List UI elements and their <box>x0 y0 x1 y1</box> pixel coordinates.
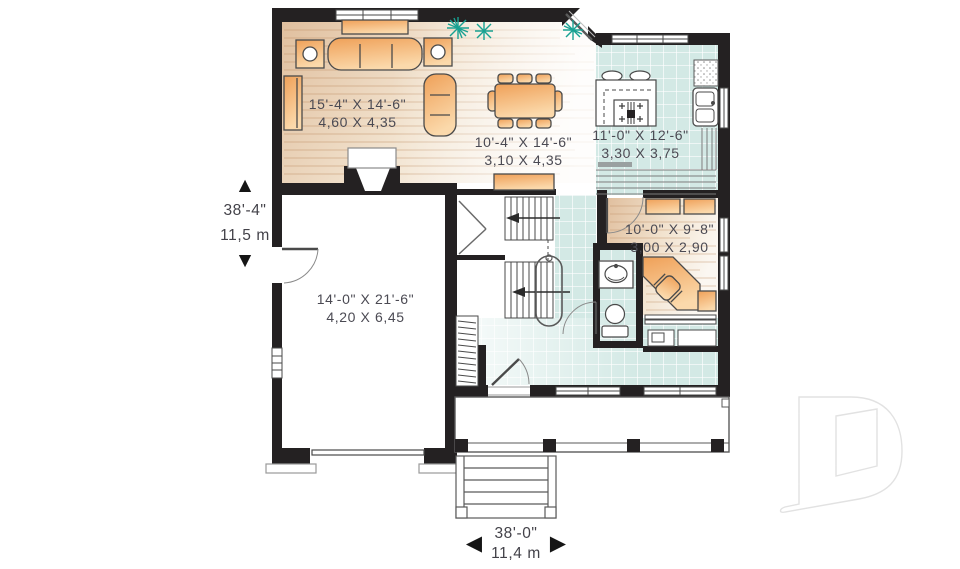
kitchen-sink <box>693 88 718 126</box>
garage-side-window <box>272 348 282 378</box>
dining-chair <box>517 119 532 128</box>
dining-chair <box>536 119 551 128</box>
foyer-window-2 <box>644 387 716 395</box>
overall-depth-dimension: ▲ 38'-4" 11,5 m ▼ <box>203 176 287 271</box>
closet-shelf <box>678 330 716 346</box>
room-dimension-imperial: 10'-0" X 9'-8" <box>582 220 757 238</box>
buffet <box>494 174 554 190</box>
shelf-unit <box>684 199 715 214</box>
width-metric: 11,4 m <box>491 544 541 564</box>
porch <box>455 397 729 452</box>
width-imperial: 38'-0" <box>494 524 537 544</box>
right-arrow-icon: ▶ <box>550 534 566 554</box>
sliding-door-track <box>645 315 716 319</box>
entry-closet <box>456 316 478 386</box>
overall-width-dimension: ◀ 38'-0" 11,4 m ▶ <box>432 524 600 564</box>
side-cabinet <box>698 291 716 311</box>
depth-metric: 11,5 m <box>220 226 270 246</box>
left-arrow-icon: ◀ <box>466 534 482 554</box>
console-table <box>342 20 408 34</box>
room-label-garage: 14'-0" X 21'-6" 4,20 X 6,45 <box>278 290 453 326</box>
kitchen-top-window <box>612 35 688 43</box>
room-dimension-imperial: 15'-4" X 14'-6" <box>270 95 445 113</box>
dining-table <box>495 84 555 118</box>
room-dimension-metric: 4,20 X 6,45 <box>278 308 453 326</box>
brand-watermark-logo <box>781 397 903 512</box>
dining-chair <box>517 74 532 83</box>
garage-door <box>312 450 424 455</box>
foundation-footings <box>266 464 469 473</box>
faucet-icon <box>711 101 715 105</box>
down-arrow-icon: ▼ <box>235 251 256 271</box>
dining-chair <box>498 74 513 83</box>
cooktop <box>614 100 648 126</box>
sliding-door-track <box>645 320 716 324</box>
fireplace <box>344 148 400 195</box>
floor-plan-canvas <box>0 0 960 569</box>
room-dimension-metric: 4,60 X 4,35 <box>270 113 445 131</box>
kitchen-sink-window <box>720 88 728 128</box>
foyer-window-1 <box>556 387 620 395</box>
room-dimension-metric: 3,00 X 2,90 <box>582 238 757 256</box>
room-label-kitchen: 11'-0" X 12'-6" 3,30 X 3,75 <box>553 126 728 162</box>
den-window-2 <box>720 256 728 290</box>
dining-chair <box>536 74 551 83</box>
room-label-den: 10'-0" X 9'-8" 3,00 X 2,90 <box>582 220 757 256</box>
front-steps <box>456 456 556 518</box>
room-dimension-metric: 3,30 X 3,75 <box>553 144 728 162</box>
counter-stipple <box>694 60 718 86</box>
living-room-window <box>336 10 418 20</box>
room-dimension-imperial: 14'-0" X 21'-6" <box>278 290 453 308</box>
den-closet <box>645 315 716 346</box>
depth-imperial: 38'-4" <box>223 201 266 221</box>
up-arrow-icon: ▲ <box>235 176 256 196</box>
sofa <box>328 38 422 70</box>
faucet-icon <box>614 264 617 267</box>
lamp-icon <box>303 47 317 61</box>
dining-chair <box>498 119 513 128</box>
lamp-icon <box>431 45 445 59</box>
toilet-bowl <box>606 305 625 324</box>
shelf-unit <box>646 199 680 214</box>
floor-plan-page: 15'-4" X 14'-6" 4,60 X 4,35 10'-4" X 14'… <box>0 0 960 569</box>
room-dimension-imperial: 11'-0" X 12'-6" <box>553 126 728 144</box>
stair-closet-bifold-door <box>459 201 486 254</box>
toilet-tank <box>602 326 628 337</box>
room-label-living-room: 15'-4" X 14'-6" 4,60 X 4,35 <box>270 95 445 131</box>
